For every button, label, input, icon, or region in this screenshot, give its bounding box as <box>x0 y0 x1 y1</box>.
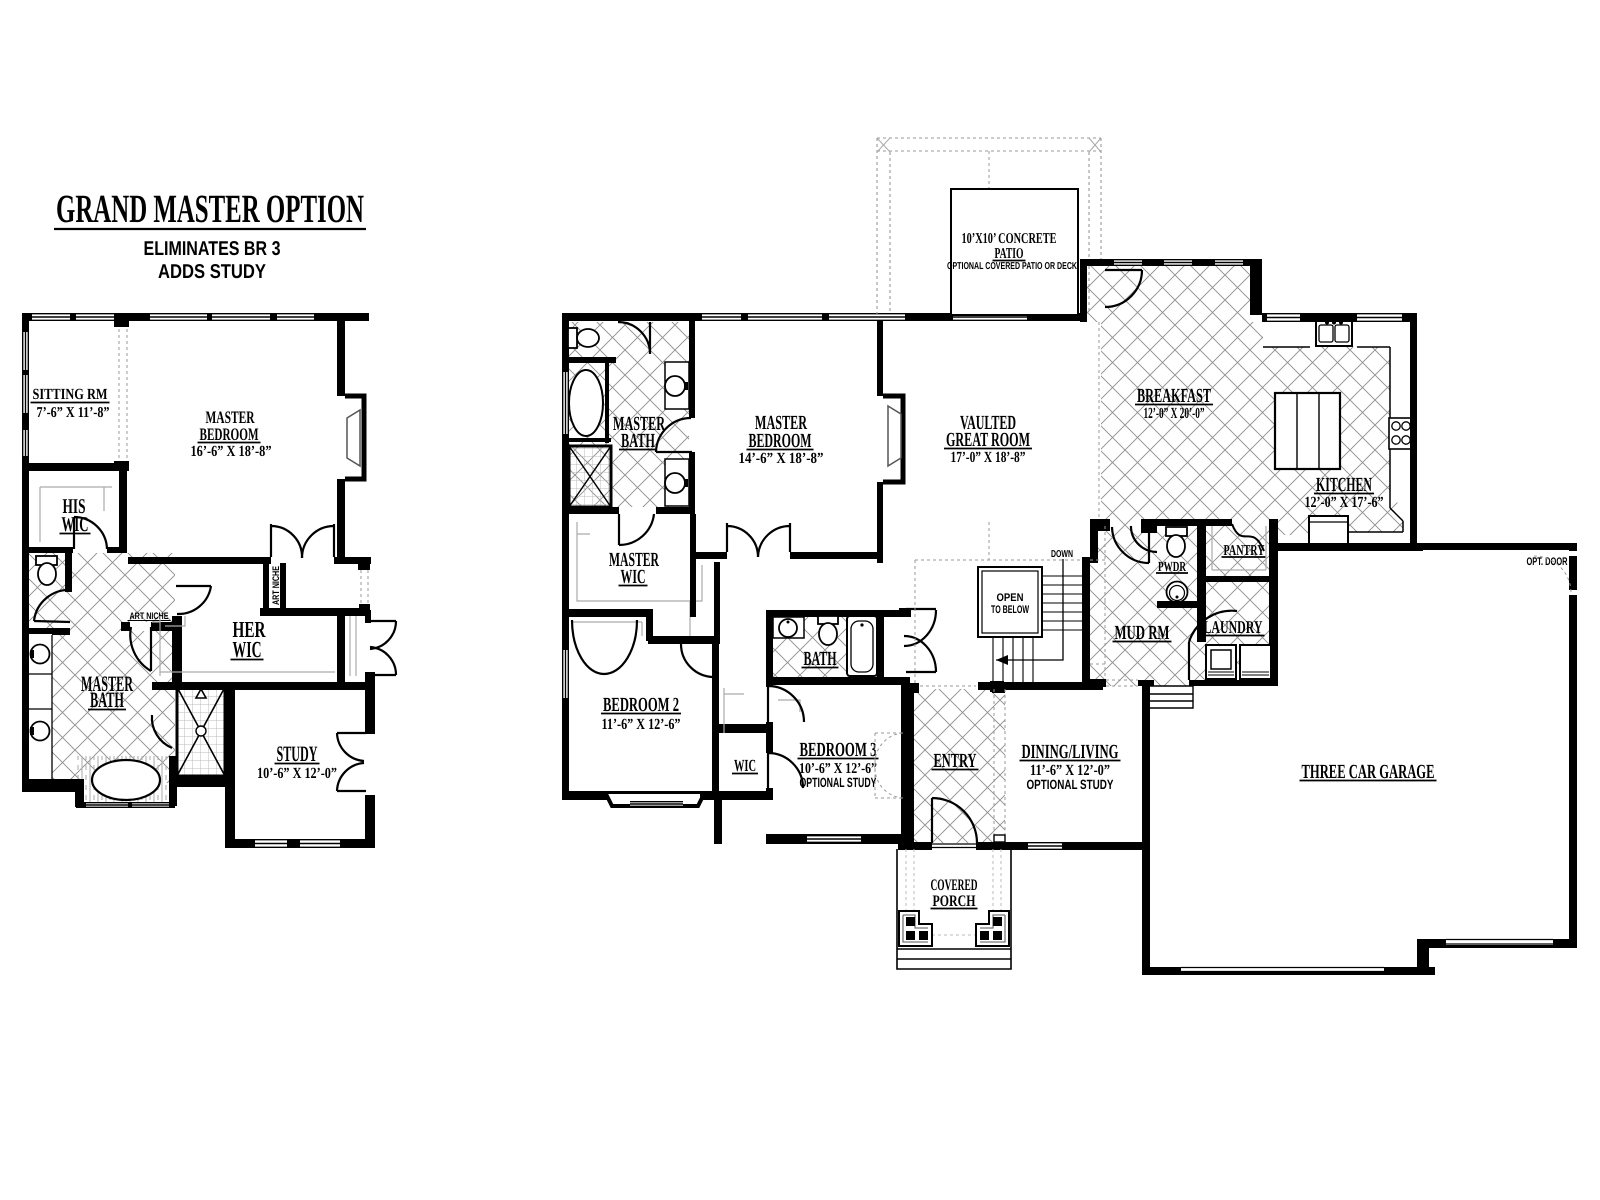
svg-text:STUDY: STUDY <box>277 741 318 766</box>
svg-text:COVERED: COVERED <box>931 877 978 894</box>
svg-text:10’X10’ CONCRETE: 10’X10’ CONCRETE <box>962 231 1057 247</box>
svg-text:PORCH: PORCH <box>933 893 976 910</box>
svg-text:7’-6” X 11’-8”: 7’-6” X 11’-8” <box>37 405 110 421</box>
svg-text:16’-6” X 18’-8”: 16’-6” X 18’-8” <box>191 443 272 460</box>
svg-text:OPEN: OPEN <box>997 592 1024 604</box>
svg-text:GRAND MASTER OPTION: GRAND MASTER OPTION <box>56 186 364 231</box>
svg-text:DOWN: DOWN <box>1051 549 1073 560</box>
svg-text:BATH: BATH <box>90 687 124 712</box>
svg-text:OPTIONAL STUDY: OPTIONAL STUDY <box>1027 777 1114 792</box>
svg-text:TO BELOW: TO BELOW <box>991 604 1029 616</box>
svg-text:17’-0” X 18’-8”: 17’-0” X 18’-8” <box>951 449 1026 466</box>
svg-text:PATIO: PATIO <box>995 246 1024 262</box>
svg-text:ART NICHE: ART NICHE <box>271 566 282 605</box>
svg-text:ELIMINATES BR 3: ELIMINATES BR 3 <box>144 238 281 260</box>
svg-text:BEDROOM: BEDROOM <box>200 424 259 444</box>
svg-text:14’-6” X 18’-8”: 14’-6” X 18’-8” <box>739 450 824 467</box>
svg-text:12’-0” X 20’-0”: 12’-0” X 20’-0” <box>1144 405 1205 422</box>
svg-text:OPTIONAL STUDY: OPTIONAL STUDY <box>800 775 877 790</box>
svg-text:11’-6” X 12’-6”: 11’-6” X 12’-6” <box>602 716 681 733</box>
svg-text:WIC: WIC <box>734 756 756 775</box>
svg-text:WIC: WIC <box>233 637 262 662</box>
svg-text:10’-6” X 12’-0”: 10’-6” X 12’-0” <box>257 765 337 782</box>
svg-text:OPT. DOOR: OPT. DOOR <box>1527 556 1568 568</box>
svg-text:LAUNDRY: LAUNDRY <box>1204 617 1263 637</box>
svg-text:SITTING RM: SITTING RM <box>33 386 108 403</box>
svg-text:OPTIONAL COVERED PATIO OR DECK: OPTIONAL COVERED PATIO OR DECK <box>947 261 1078 272</box>
svg-text:ADDS STUDY: ADDS STUDY <box>158 261 267 283</box>
svg-text:12’-0” X 17’-6”: 12’-0” X 17’-6” <box>1305 494 1384 511</box>
